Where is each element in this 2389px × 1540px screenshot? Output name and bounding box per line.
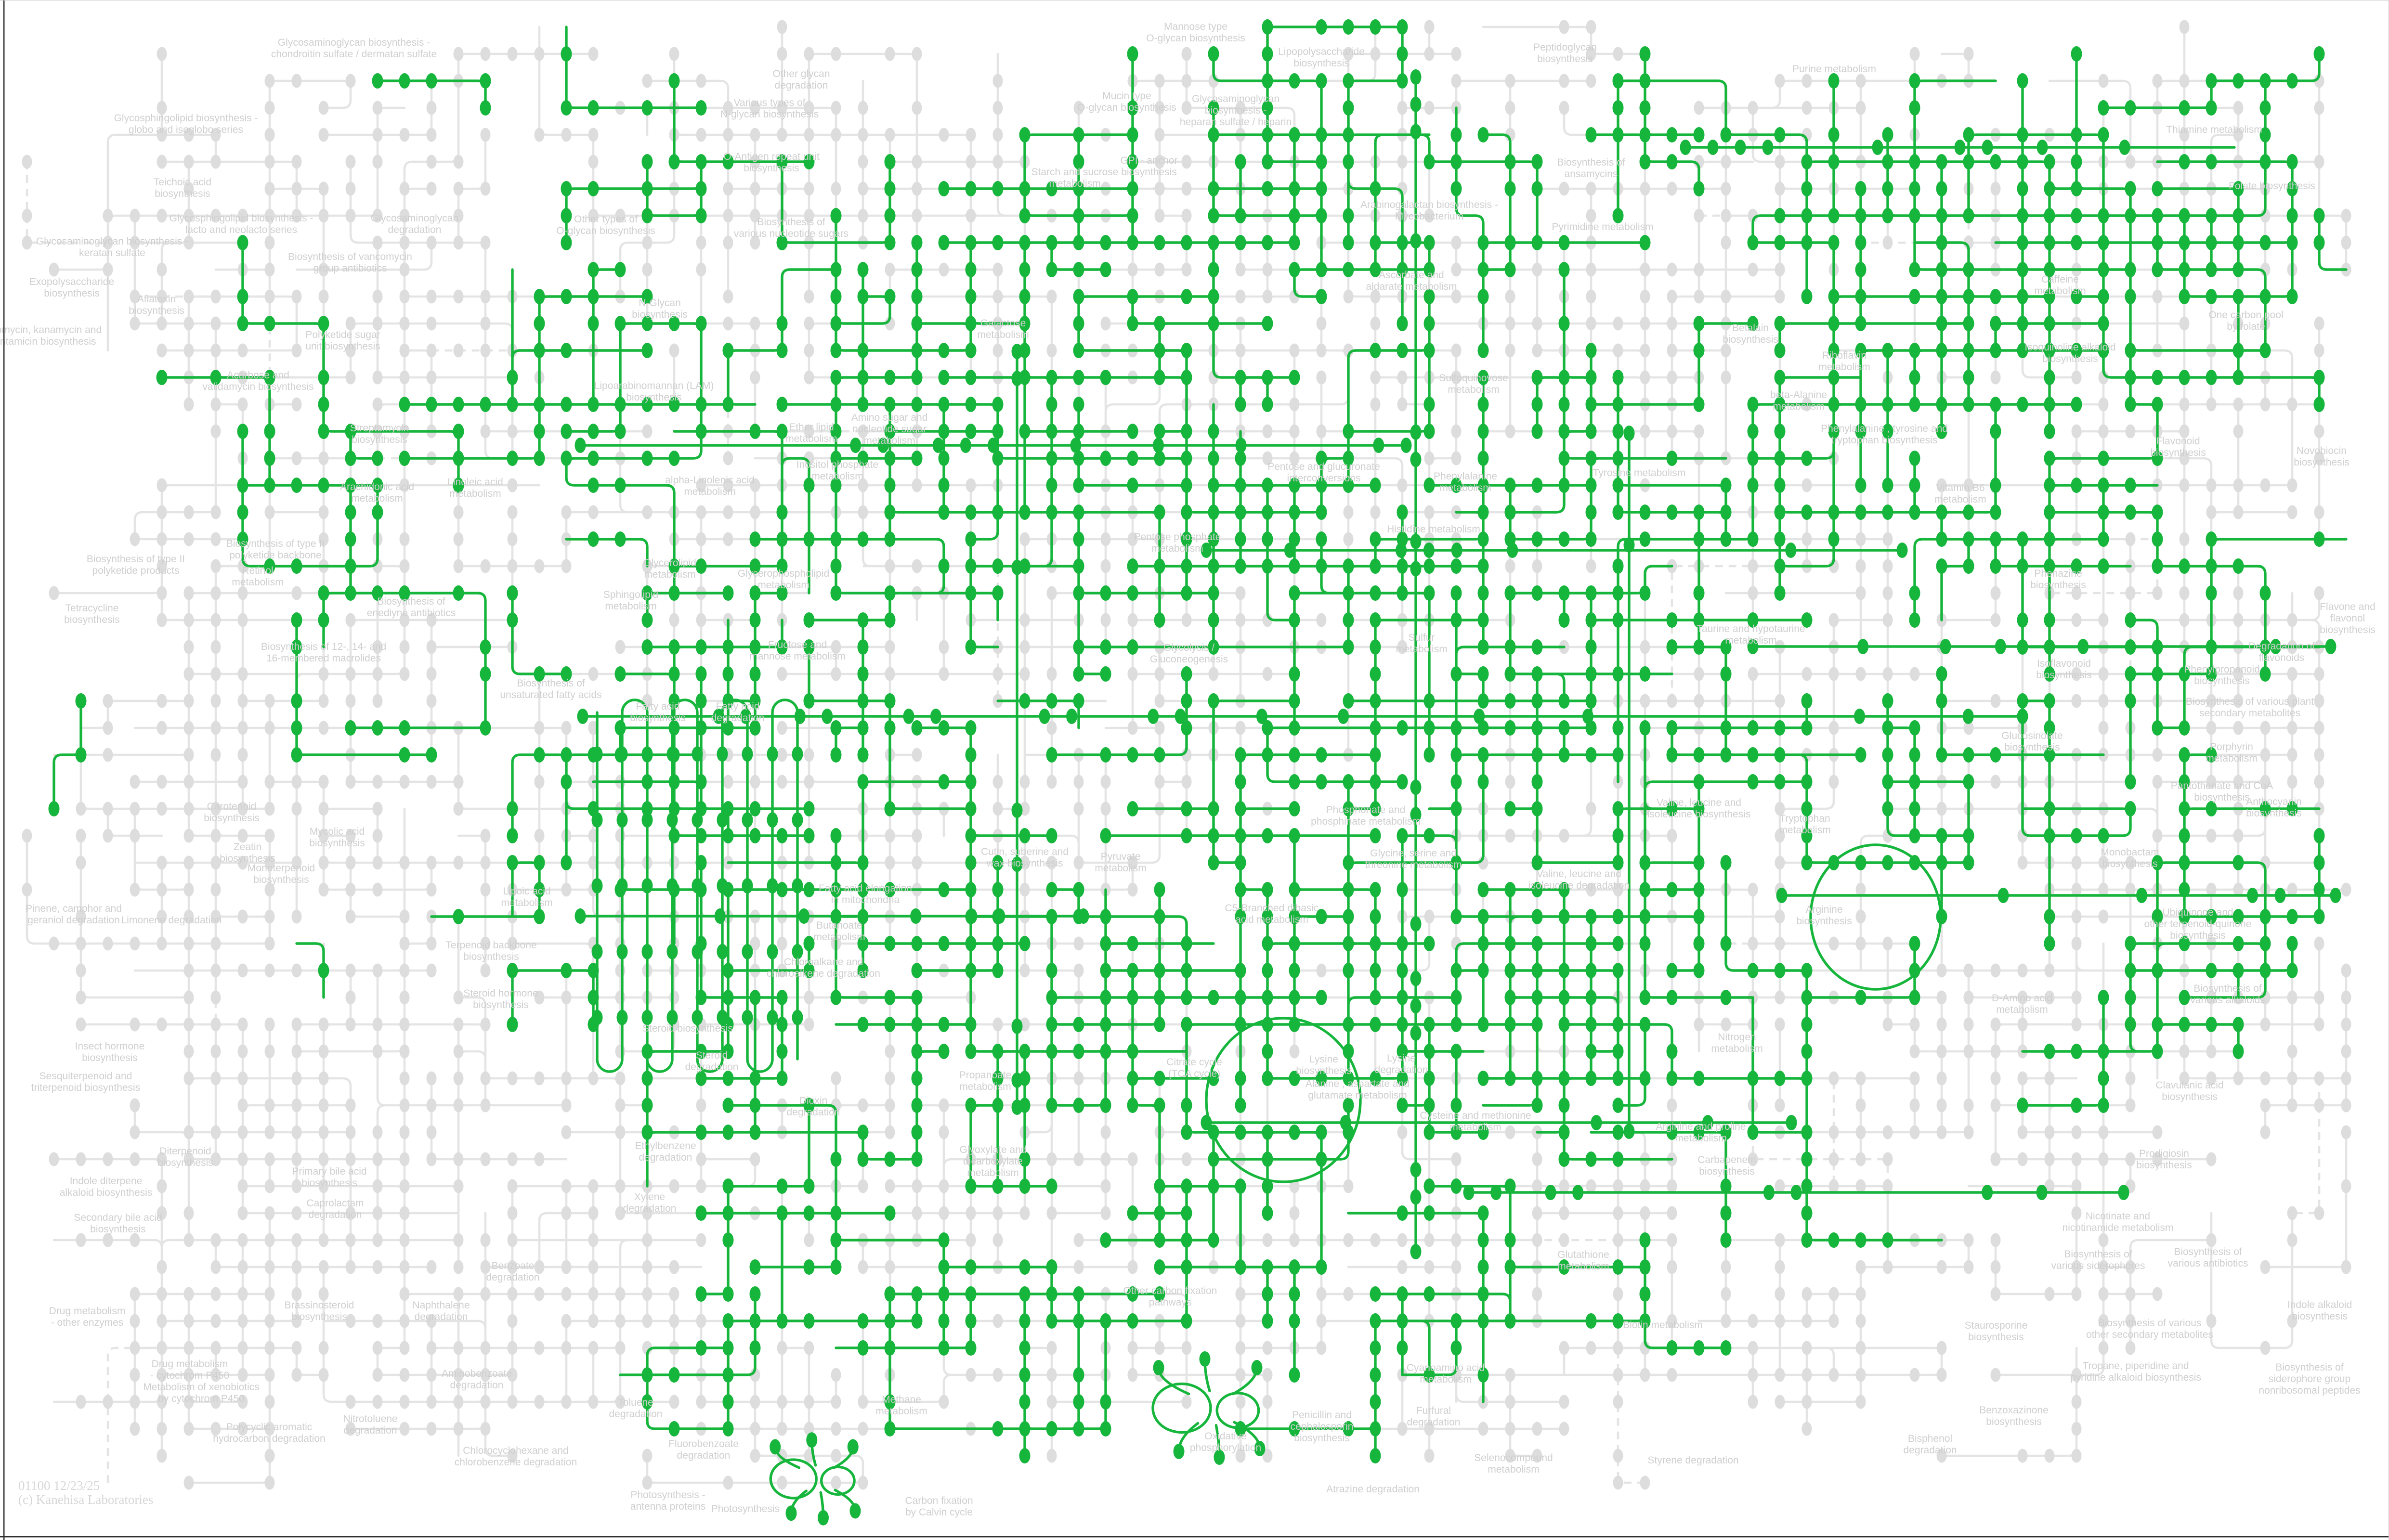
- pathway-label: Methanemetabolism: [875, 1394, 927, 1417]
- pathway-label: Atrazine degradation: [1326, 1484, 1420, 1495]
- pathway-label: Brassinosteroidbiosynthesis: [285, 1300, 354, 1322]
- pathway-label: Steroid hormonebiosynthesis: [463, 988, 538, 1010]
- pathway-label: Zeatinbiosynthesis: [220, 841, 275, 864]
- pathway-label: Valine, leucine andisoleucine biosynthes…: [1647, 797, 1751, 820]
- pathway-label: Mucin typeO-glycan biosynthesis: [1077, 91, 1176, 113]
- pathway-label: Biosynthesis of variousother secondary m…: [2086, 1318, 2213, 1340]
- pathway-label: Neomycin, kanamycin andgentamicin biosyn…: [0, 324, 102, 347]
- pathway-label: Mannose typeO-glycan biosynthesis: [1146, 21, 1245, 44]
- pathway-label: Phenylalanine , tyrosine andtryptophan b…: [1821, 423, 1948, 446]
- pathway-label: Arachidonic acidmetabolism: [340, 481, 414, 504]
- pathway-label: Biosynthesis ofansamycins: [1557, 157, 1625, 180]
- pathway-label: Pyrimidine metabolism: [1552, 221, 1653, 233]
- pathway-label: Ether lipidmetabolism: [785, 422, 837, 444]
- pathway-label: Glycerophospholipidmetabolism: [738, 568, 829, 591]
- pathway-label: Sulfoquinovosemetabolism: [1439, 373, 1508, 395]
- pathway-label: Isoflavonoidbiosynthesis: [2036, 658, 2092, 681]
- pathway-label: Lipoic acidmetabolism: [501, 886, 552, 908]
- pathway-label: Biosynthesis ofvarious alkaloids: [2190, 983, 2265, 1006]
- pathway-label: Tryptophanmetabolism: [1779, 813, 1830, 836]
- pathway-label: Carotenoidbiosynthesis: [204, 801, 260, 824]
- pathway-label: Teichoic acidbiosynthesis: [154, 177, 211, 199]
- pathway-label: GPI - anchorbiosynthesis: [1120, 155, 1177, 178]
- pathway-label: Glycosaminoglycandegradation: [371, 213, 458, 235]
- pathway-label: Monobactambiosynthesis: [2101, 847, 2159, 869]
- pathway-label: D-Amino acidmetabolism: [1992, 993, 2052, 1015]
- pathway-label: Glyoxylate anddicarboxylatemetabolism: [960, 1144, 1027, 1178]
- pathway-label: Folate biosynthesis: [2229, 181, 2315, 192]
- pathway-label: Selenocompoundmetabolism: [1474, 1452, 1553, 1475]
- pathway-label: Pyruvatemetabolism: [1095, 851, 1146, 874]
- pathway-label: Linoleic acidmetabolism: [447, 477, 503, 499]
- pathway-label: Fatty acid elongationin mitochondria: [819, 883, 912, 906]
- pathway-label: Phenazinebiosynthesis: [2030, 568, 2086, 591]
- pathway-label: Sesquiterpenoid andtriterpenoid biosynth…: [31, 1071, 140, 1093]
- pathway-label: Arabinogalactan biosynthesis -Mycobacter…: [1360, 199, 1498, 222]
- pathway-label: Nitrogenmetabolism: [1711, 1032, 1762, 1054]
- pathway-label: Anthocyaninbiosynthesis: [2246, 796, 2302, 819]
- pathway-label: Glucosinolatebiosynthesis: [2001, 730, 2063, 753]
- pathway-label: Lysinedegradation: [1375, 1053, 1428, 1075]
- pathway-label: Biosynthesis ofvarious siderophores: [2051, 1249, 2145, 1271]
- pathway-label: Carbapenembiosynthesis: [1697, 1154, 1756, 1177]
- pathway-label: Fructose andmannose metabolism: [749, 639, 846, 662]
- pathway-label: Phosphonate andphosphinate metabolism: [1311, 804, 1421, 827]
- pathway-label: Phenylalaninemetabolism: [1434, 471, 1497, 493]
- pathway-label: Chlorocyclohexane andchlorobenzene degra…: [455, 1445, 577, 1468]
- pathway-label: Biosynthesis of various plantsecondary m…: [2186, 696, 2314, 719]
- pathway-label: Flavone andflavonolbiosynthesis: [2320, 601, 2376, 635]
- pathway-label: Glycosphingolipid biosynthesis -lacto an…: [170, 213, 313, 235]
- pathway-label: Drug metabolism- other enzymes: [49, 1306, 126, 1328]
- pathway-label: beta-Alaninemetabolism: [1770, 389, 1827, 412]
- map-id-text: 01100 12/23/25: [18, 1479, 153, 1493]
- pathway-label: One carbon poolby folate: [2208, 310, 2283, 332]
- pathway-label: Monoterpenoidbiosynthesis: [248, 863, 315, 885]
- pathway-label: Phenylpropanoidbiosynthesis: [2184, 664, 2260, 686]
- pathway-label: Purine metabolism: [1792, 64, 1876, 75]
- pathway-label: Exopolysaccharidebiosynthesis: [29, 276, 114, 299]
- pathway-label: Lipoarabinomannan (LAM)biosynthesis: [594, 380, 714, 403]
- pathway-label: Biosynthesis of type IIpolyketide backbo…: [226, 538, 325, 561]
- pathway-label: Biosynthesis ofenediyne antibiotics: [367, 596, 456, 619]
- pathway-label: Biosynthesis ofvarious antibiotics: [2168, 1246, 2248, 1269]
- pathway-label: Degradation offlavonoids: [2248, 641, 2315, 663]
- pathway-label: Betalainbiosynthesis: [1723, 323, 1778, 345]
- pathway-label: Furfuraldegradation: [1407, 1405, 1461, 1428]
- pathway-label: Penicillin andcephalosporinbiosynthesis: [1291, 1410, 1354, 1444]
- pathway-label: Indole alkaloidbiosynthesis: [2287, 1299, 2352, 1322]
- pathway-label: Porphyrinmetabolism: [2206, 741, 2257, 764]
- pathway-label: Dioxindegradation: [787, 1095, 840, 1118]
- pathway-label: Various types ofN-glycan biosynthesis: [720, 97, 819, 120]
- pathway-label: Sphingolipidmetabolism: [603, 589, 658, 612]
- pathway-network-svg: Glycosaminoglycan biosynthesis -chondroi…: [0, 0, 2389, 1540]
- pathway-label: Cutin, suberine andwax biosynthesis: [981, 846, 1069, 869]
- pathway-label: Prodigiosinbiosynthesis: [2136, 1148, 2192, 1171]
- pathway-label: Ethylbenzenedegradation: [635, 1140, 696, 1163]
- pathway-label: Argininebiosynthesis: [1796, 904, 1852, 927]
- pathway-label: Indole diterpenealkaloid biosynthesis: [60, 1176, 153, 1198]
- pathway-label: N-Glycanbiosynthesis: [632, 298, 688, 320]
- pathway-label: Streptomycinbiosynthesis: [350, 423, 409, 445]
- pathway-label: Photosynthesis -antenna proteins: [630, 1489, 705, 1512]
- pathway-label: Pinene, camphor andgeraniol degradation: [26, 903, 122, 926]
- pathway-label: Vitamin B6metabolism: [1934, 482, 1986, 505]
- pathway-label: Glycosaminoglycan biosynthesis -chondroi…: [271, 37, 437, 60]
- pathway-label: Styrene degradation: [1647, 1455, 1738, 1466]
- pathway-label: Tropane, piperidine andpyridine alkaloid…: [2070, 1360, 2201, 1383]
- pathway-label: Polyketide sugarunit biosynthesis: [305, 329, 380, 352]
- pathway-label: Caffeinemetabolism: [2034, 274, 2086, 297]
- pathway-label: Naphthalenedegradation: [412, 1300, 470, 1322]
- pathway-label: Butanoatemetabolism: [813, 920, 865, 943]
- pathway-label: Other glycandegradation: [772, 68, 830, 91]
- pathway-label: Steroid biosynthesis: [642, 1023, 733, 1034]
- pathway-label: Sulfurmetabolism: [1396, 632, 1447, 655]
- pathway-label: Tyrosine metabolism: [1593, 467, 1686, 479]
- pathway-label: Pentose and glucuronateinterconversions: [1267, 461, 1380, 484]
- pathway-label: Biosynthesis ofunsaturated fatty acids: [500, 678, 601, 700]
- pathway-label: Glycine, serine andthreonine metabolism: [1365, 848, 1462, 870]
- pathway-label: Drug metabolism- cytochrom P450: [150, 1359, 230, 1381]
- pathway-label: Biosynthesis ofsiderophore groupnonribos…: [2258, 1362, 2360, 1396]
- pathway-label: Aminobenzoatedegradation: [442, 1368, 512, 1391]
- pathway-label: Lysinebiosynthesis: [1296, 1054, 1352, 1076]
- pathway-label: Polycyclic aromatichydrocarbon degradati…: [213, 1422, 326, 1444]
- pathway-label: Caprolactamdegradation: [306, 1198, 364, 1220]
- pathway-label: Valine, leucine andisoleucine degradatio…: [1528, 868, 1630, 891]
- pathway-label: Glycosphingolipid biosynthesis -globo an…: [114, 113, 258, 135]
- pathway-label: Tetracyclinebiosynthesis: [64, 603, 120, 625]
- pathway-label: Biosynthesis of 12-, 14- and16-membered …: [261, 641, 386, 664]
- pathway-label: Carbon fixationby Calvin cycle: [905, 1495, 973, 1518]
- pathway-label: Limonene degradation: [121, 915, 222, 926]
- pathway-label: Flavonoidbiosynthesis: [2150, 436, 2206, 458]
- highlighted-pathways-layer: [49, 19, 2347, 1526]
- map-footer: 01100 12/23/25 (c) Kanehisa Laboratories: [18, 1479, 153, 1507]
- pathway-label: Biosynthesis of type IIpolyketide produc…: [87, 554, 185, 576]
- pathway-label: Glutathionemetabolism: [1557, 1249, 1609, 1272]
- pathway-label: Histidine metabolism: [1387, 524, 1480, 535]
- metabolic-pathway-map: Glycosaminoglycan biosynthesis -chondroi…: [0, 0, 2389, 1540]
- pathway-label: Photosynthesis: [711, 1503, 780, 1514]
- pathway-label: Glycosaminoglycan biosynthesis -keratan …: [36, 236, 188, 259]
- pathway-label: C5-Branched dibasicacid metabolism: [1225, 903, 1319, 925]
- pathway-label: Riboflavinmetabolism: [1818, 350, 1870, 373]
- pathway-label: Peptidoglycanbiosynthesis: [1533, 42, 1597, 65]
- pathway-label: Glycerolipidmetabolism: [643, 557, 696, 580]
- pathway-label: Fatty aciddegradation: [711, 701, 765, 724]
- pathway-label: Fluorobenzoatedegradation: [668, 1438, 739, 1461]
- pathway-label: Thiamine metabolism: [2166, 124, 2262, 135]
- map-frame: [0, 0, 2389, 1540]
- pathway-label: Novobiocinbiosynthesis: [2294, 445, 2350, 468]
- pathway-label: Bisphenoldegradation: [1904, 1433, 1957, 1456]
- pathway-label: Galactosemetabolism: [977, 318, 1029, 340]
- pathway-label: Fatty acidbiosynthesis: [630, 701, 686, 724]
- pathway-label: Alanine , aspartate andglutamate metabol…: [1305, 1078, 1410, 1101]
- pathway-label: Secondary bile acidbiosynthesis: [74, 1212, 162, 1235]
- pathway-label: Ascorbate andaldarate metabolism: [1366, 270, 1457, 292]
- pathway-label: Biotin metabolism: [1623, 1320, 1703, 1331]
- pathway-label: Biosynthesis ofvarious nucleotide sugars: [734, 217, 849, 239]
- pathway-label: Citrate cycle(TCA cycle): [1166, 1057, 1222, 1079]
- pathway-label: Glycosaminoglycanbiosynthesis -heparan s…: [1180, 93, 1292, 128]
- pathway-label: Taurine and hypotaurinemetabolism: [1697, 623, 1805, 646]
- pathway-label: Benzoatedegradation: [486, 1260, 540, 1283]
- pathway-label: Insect hormonebiosynthesis: [75, 1041, 145, 1063]
- pathway-label: Primary bile acidbiosynthesis: [292, 1166, 366, 1189]
- pathway-label: Diterpenoidbiosynthesis: [157, 1146, 213, 1168]
- pathway-label: Xylenedegradation: [623, 1191, 677, 1214]
- pathway-label: Staurosporinebiosynthesis: [1965, 1320, 2028, 1343]
- pathway-label: Benzoxazinonebiosynthesis: [1979, 1405, 2049, 1427]
- pathway-label: Mycolic acidbiosynthesis: [309, 826, 365, 849]
- pathway-label: Metabolism of xenobioticsby cytochrom P4…: [143, 1382, 260, 1404]
- pathway-label: Clavulanic acidbiosynthesis: [2155, 1080, 2223, 1102]
- pathway-label: Nitrotoluenedegradation: [343, 1413, 397, 1436]
- copyright-text: (c) Kanehisa Laboratories: [18, 1493, 153, 1507]
- pathway-label: Propanoatemetabolism: [959, 1070, 1012, 1092]
